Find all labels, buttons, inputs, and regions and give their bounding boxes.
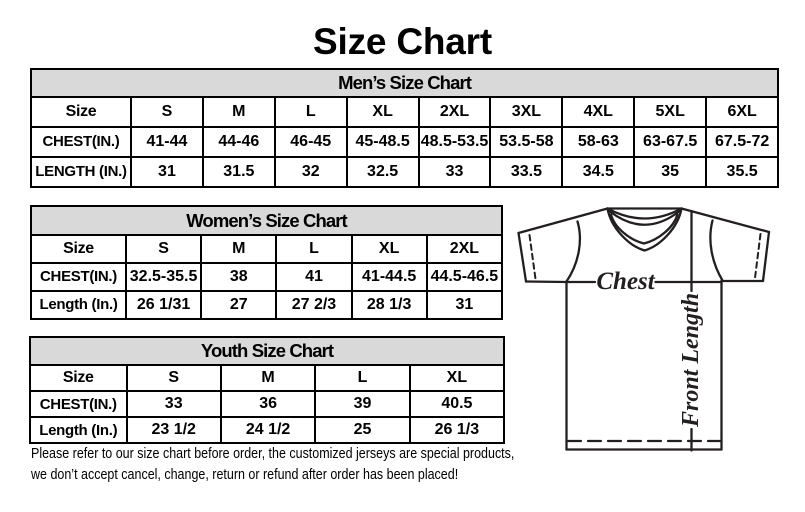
svg-text:Chest: Chest <box>596 268 655 295</box>
svg-text:Front Length: Front Length <box>678 293 704 428</box>
